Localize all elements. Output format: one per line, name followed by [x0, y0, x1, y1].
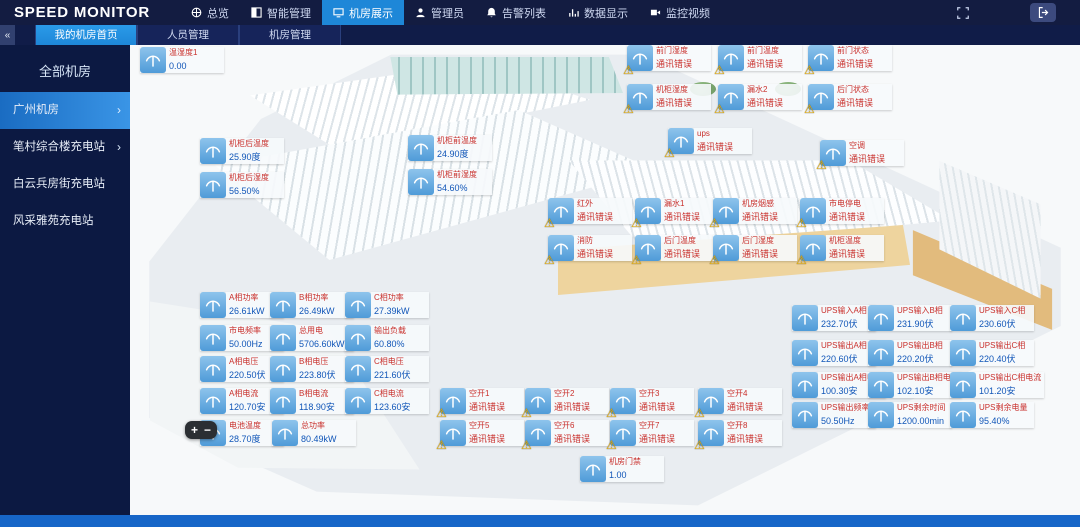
sensor-text: UPS输出B相 220.20伏 — [894, 340, 952, 366]
overview-icon — [191, 7, 202, 18]
sensor-text: 空开5 通讯错误 — [466, 420, 524, 446]
tab-bar: « 我的机房首页 人员管理 机房管理 — [0, 25, 1080, 45]
sensor-icon: ⚠ — [408, 169, 434, 195]
sensor-value: 221.60伏 — [374, 368, 426, 380]
warning-icon: ⚠ — [436, 439, 447, 451]
sensor-icon: ⚠ — [610, 388, 636, 414]
sensor-title: UPS输出C相电流 — [979, 373, 1041, 382]
sensor-text: UPS输入C相 230.60伏 — [976, 305, 1034, 331]
sensor-value: 5706.60kWh — [299, 337, 351, 349]
sidebar-room-label: 风采雅苑充电站 — [13, 215, 94, 227]
sensor-value: 27.39kW — [374, 304, 426, 316]
sensor-icon: ⚠ — [270, 292, 296, 318]
sensor-label[interactable]: ⚠ 红外 通讯错误 — [548, 198, 632, 224]
logout-icon[interactable] — [1030, 3, 1056, 22]
sensor-icon: ⚠ — [713, 198, 739, 224]
sensor-value: 通讯错误 — [554, 400, 606, 412]
sensor-text: 空开4 通讯错误 — [724, 388, 782, 414]
sensor-label[interactable]: ⚠ 前门湿度 通讯错误 — [627, 45, 711, 71]
sensor-title: UPS输出频率 — [821, 403, 873, 412]
sidebar-room-label: 广州机房 — [13, 104, 59, 116]
sensor-title: 机柜温度 — [829, 236, 881, 245]
sensor-icon: ⚠ — [345, 292, 371, 318]
tab[interactable]: 机房管理 — [239, 25, 341, 45]
sensor-label[interactable]: ⚠ 空开2 通讯错误 — [525, 388, 609, 414]
nav-item-label: 智能管理 — [267, 5, 311, 21]
sensor-value: 通讯错误 — [837, 96, 889, 108]
sensor-value: 通讯错误 — [727, 400, 779, 412]
sensor-icon: ⚠ — [635, 198, 661, 224]
sensor-title: 空开3 — [639, 389, 691, 398]
sensor-label[interactable]: ⚠ UPS输出C相电流 101.20安 — [950, 372, 1044, 398]
sensor-icon: ⚠ — [792, 305, 818, 331]
smart-icon — [251, 7, 262, 18]
nav-item[interactable]: 告警列表 — [475, 0, 557, 25]
tabs: 我的机房首页 人员管理 机房管理 — [35, 25, 341, 45]
warning-icon: ⚠ — [694, 439, 705, 451]
sensor-label[interactable]: ⚠ 后门温度 通讯错误 — [635, 235, 719, 261]
sensor-value: 220.20伏 — [897, 352, 949, 364]
sensor-title: UPS输入B相 — [897, 306, 949, 315]
fullscreen-icon[interactable] — [956, 6, 970, 20]
sensor-icon: ⚠ — [808, 45, 834, 71]
sidebar-room-label: 笔村综合楼充电站 — [13, 141, 105, 153]
sensor-label[interactable]: ⚠ 温湿度1 0.00 — [140, 47, 224, 73]
sensor-icon: ⚠ — [868, 372, 894, 398]
sensor-text: 空开8 通讯错误 — [724, 420, 782, 446]
sensor-title: ups — [697, 129, 749, 138]
sensor-value: 通讯错误 — [742, 210, 794, 222]
top-navigation-bar: SPEED MONITOR 总览 智能管理 机房展示 管理员 告警列表 数据显示 — [0, 0, 1080, 25]
warning-icon: ⚠ — [694, 407, 705, 419]
sensor-title: 机柜后湿度 — [229, 173, 281, 182]
sensor-icon: ⚠ — [270, 388, 296, 414]
sensor-text: 市电停电 通讯错误 — [826, 198, 884, 224]
sensor-icon: ⚠ — [200, 388, 226, 414]
zoom-out-button[interactable]: − — [204, 424, 211, 436]
sensor-value: 通讯错误 — [742, 247, 794, 259]
sensor-icon: ⚠ — [200, 138, 226, 164]
sensor-label[interactable]: ⚠ UPS输出B相 220.20伏 — [868, 340, 952, 366]
sensor-label[interactable]: ⚠ 空开7 通讯错误 — [610, 420, 694, 446]
sensor-title: 前门湿度 — [656, 46, 708, 55]
sensor-icon: ⚠ — [950, 340, 976, 366]
sensor-label[interactable]: ⚠ 机柜湿度 通讯错误 — [627, 84, 711, 110]
sensor-icon: ⚠ — [800, 235, 826, 261]
sensor-label[interactable]: ⚠ 机柜前温度 24.90度 — [408, 135, 492, 161]
tab-label: 我的机房首页 — [55, 29, 118, 41]
sensor-label[interactable]: ⚠ 机柜温度 通讯错误 — [800, 235, 884, 261]
machine-room-3d-map[interactable]: ⚠ 温湿度1 0.00 ⚠ 机柜后温度 25.90度 — [0, 0, 1080, 527]
sensor-title: 温湿度1 — [169, 48, 221, 57]
nav-item[interactable]: 管理员 — [404, 0, 475, 25]
sidebar-room-item[interactable]: 风采雅苑充电站 › — [0, 203, 130, 240]
alarms-icon — [486, 7, 497, 18]
sensor-value: 通讯错误 — [656, 57, 708, 69]
sensor-value: 232.70伏 — [821, 317, 873, 329]
sensor-label[interactable]: ⚠ 前门温度 通讯错误 — [718, 45, 802, 71]
sensor-icon: ⚠ — [548, 198, 574, 224]
sensor-title: 漏水1 — [664, 199, 716, 208]
nav-item-label: 管理员 — [431, 5, 464, 21]
sensor-label[interactable]: ⚠ 空开3 通讯错误 — [610, 388, 694, 414]
sensor-title: 后门温度 — [664, 236, 716, 245]
sensor-label[interactable]: ⚠ B相功率 26.49kW — [270, 292, 354, 318]
sensor-icon: ⚠ — [627, 45, 653, 71]
sensor-title: 前门状态 — [837, 46, 889, 55]
sensor-icon: ⚠ — [950, 372, 976, 398]
sensor-text: 机柜前湿度 54.60% — [434, 169, 492, 195]
sensor-text: 机房烟感 通讯错误 — [739, 198, 797, 224]
warning-icon: ⚠ — [631, 254, 642, 266]
sensor-icon: ⚠ — [610, 420, 636, 446]
data-icon — [568, 7, 579, 18]
sensor-value: 54.60% — [437, 181, 489, 193]
sensor-label[interactable]: ⚠ UPS输出C相 220.40伏 — [950, 340, 1034, 366]
sensor-value: 231.90伏 — [897, 317, 949, 329]
sensor-value: 1.00 — [609, 468, 661, 480]
sensor-text: UPS输出C相电流 101.20安 — [976, 372, 1044, 398]
sensor-title: UPS剩余电量 — [979, 403, 1031, 412]
warning-icon: ⚠ — [796, 217, 807, 229]
sensor-icon: ⚠ — [718, 84, 744, 110]
sensor-text: C相功率 27.39kW — [371, 292, 429, 318]
sensor-title: 空开1 — [469, 389, 521, 398]
sensor-value: 223.80伏 — [299, 368, 351, 380]
sensor-text: 后门湿度 通讯错误 — [739, 235, 797, 261]
sensor-value: 1200.00min — [897, 414, 949, 426]
sensor-label[interactable]: ⚠ UPS输入C相 230.60伏 — [950, 305, 1034, 331]
warning-icon: ⚠ — [631, 217, 642, 229]
sensor-label[interactable]: ⚠ 总用电 5706.60kWh — [270, 325, 354, 351]
sensor-icon: ⚠ — [627, 84, 653, 110]
sensor-label[interactable]: ⚠ 后门状态 通讯错误 — [808, 84, 892, 110]
sensor-title: 空开4 — [727, 389, 779, 398]
sensor-title: 空开8 — [727, 421, 779, 430]
sensor-text: UPS剩余时间 1200.00min — [894, 402, 952, 428]
sensor-title: 机房门禁 — [609, 457, 661, 466]
sensor-value: 通讯错误 — [849, 152, 901, 164]
nav-item[interactable]: 监控视频 — [639, 0, 721, 25]
sensor-label[interactable]: ⚠ 机房门禁 1.00 — [580, 456, 664, 482]
sensor-icon: ⚠ — [548, 235, 574, 261]
sensor-label[interactable]: ⚠ B相电流 118.90安 — [270, 388, 354, 414]
sensor-text: 后门状态 通讯错误 — [834, 84, 892, 110]
sensor-label[interactable]: ⚠ 空开5 通讯错误 — [440, 420, 524, 446]
sensor-title: 机柜湿度 — [656, 85, 708, 94]
sensor-value: 通讯错误 — [469, 400, 521, 412]
chevron-right-icon: › — [117, 129, 121, 166]
warning-icon: ⚠ — [816, 159, 827, 171]
sensor-title: UPS输出C相 — [979, 341, 1031, 350]
warning-icon: ⚠ — [714, 64, 725, 76]
sensor-icon: ⚠ — [345, 388, 371, 414]
sensor-value: 50.50Hz — [821, 414, 873, 426]
nav-item[interactable]: 机房展示 — [322, 0, 404, 25]
sensor-title: 机柜后温度 — [229, 139, 281, 148]
sensor-title: 输出负载 — [374, 326, 426, 335]
sensor-label[interactable]: ⚠ 空开8 通讯错误 — [698, 420, 782, 446]
warning-icon: ⚠ — [544, 217, 555, 229]
sidebar-collapse-button[interactable]: « — [0, 25, 15, 45]
sensor-label[interactable]: ⚠ 后门湿度 通讯错误 — [713, 235, 797, 261]
sensor-title: B相功率 — [299, 293, 351, 302]
sensor-label[interactable]: ⚠ 机柜前湿度 54.60% — [408, 169, 492, 195]
sensor-label[interactable]: ⚠ 机柜后温度 25.90度 — [200, 138, 284, 164]
warning-icon: ⚠ — [436, 407, 447, 419]
warning-icon: ⚠ — [664, 147, 675, 159]
sensor-label[interactable]: ⚠ C相电压 221.60伏 — [345, 356, 429, 382]
sensor-icon: ⚠ — [792, 402, 818, 428]
sensor-icon: ⚠ — [440, 420, 466, 446]
sensor-value: 24.90度 — [437, 147, 489, 159]
sensor-label[interactable]: ⚠ ups 通讯错误 — [668, 128, 752, 154]
chevron-right-icon: › — [117, 92, 121, 129]
sensor-title: 后门状态 — [837, 85, 889, 94]
sensor-label[interactable]: ⚠ B相电压 223.80伏 — [270, 356, 354, 382]
sensor-value: 通讯错误 — [727, 432, 779, 444]
sensor-title: 总功率 — [301, 421, 353, 430]
sensor-value: 通讯错误 — [829, 210, 881, 222]
sensor-value: 220.40伏 — [979, 352, 1031, 364]
app-logo: SPEED MONITOR — [14, 4, 150, 21]
sensor-label[interactable]: ⚠ UPS剩余电量 95.40% — [950, 402, 1034, 428]
sensor-value: 通讯错误 — [639, 432, 691, 444]
sensor-value: 通讯错误 — [554, 432, 606, 444]
sensor-value: 通讯错误 — [747, 57, 799, 69]
building-glass-section — [388, 55, 623, 95]
sensor-text: 机柜后湿度 56.50% — [226, 172, 284, 198]
sensor-text: 输出负载 60.80% — [371, 325, 429, 351]
warning-icon: ⚠ — [623, 103, 634, 115]
sensor-value: 25.90度 — [229, 150, 281, 162]
rooms-icon — [333, 7, 344, 18]
warning-icon: ⚠ — [714, 103, 725, 115]
sensor-title: UPS剩余时间 — [897, 403, 949, 412]
sensor-icon: ⚠ — [792, 340, 818, 366]
sensor-label[interactable]: ⚠ 市电停电 通讯错误 — [800, 198, 884, 224]
sensor-title: 空开7 — [639, 421, 691, 430]
sidebar-room-label: 白云兵房街充电站 — [13, 178, 105, 190]
sensor-value: 95.40% — [979, 414, 1031, 426]
sensor-label[interactable]: ⚠ UPS输入B相 231.90伏 — [868, 305, 952, 331]
sensor-text: 空开7 通讯错误 — [636, 420, 694, 446]
sensor-text: 空开1 通讯错误 — [466, 388, 524, 414]
sensor-value: 26.49kW — [299, 304, 351, 316]
sensor-title: C相电流 — [374, 389, 426, 398]
sensor-text: 机柜湿度 通讯错误 — [653, 84, 711, 110]
sensor-text: 总功率 80.49kW — [298, 420, 356, 446]
warning-icon: ⚠ — [623, 64, 634, 76]
sidebar-title: 全部机房 — [0, 61, 130, 80]
nav-item[interactable]: 智能管理 — [240, 0, 322, 25]
sensor-icon: ⚠ — [408, 135, 434, 161]
warning-icon: ⚠ — [709, 217, 720, 229]
sensor-label[interactable]: ⚠ 机柜后湿度 56.50% — [200, 172, 284, 198]
sensor-text: 空开2 通讯错误 — [551, 388, 609, 414]
sensor-title: 空调 — [849, 141, 901, 150]
sensor-title: 红外 — [577, 199, 629, 208]
sensor-icon: ⚠ — [140, 47, 166, 73]
sensor-title: UPS输出B相 — [897, 341, 949, 350]
sensor-text: 前门湿度 通讯错误 — [653, 45, 711, 71]
sensor-icon: ⚠ — [868, 340, 894, 366]
sensor-icon: ⚠ — [950, 305, 976, 331]
sensor-icon: ⚠ — [440, 388, 466, 414]
main-nav: 总览 智能管理 机房展示 管理员 告警列表 数据显示 监控视频 — [180, 0, 721, 25]
sensor-label[interactable]: ⚠ UPS剩余时间 1200.00min — [868, 402, 952, 428]
warning-icon: ⚠ — [796, 254, 807, 266]
tab-label: 人员管理 — [167, 29, 209, 41]
sensor-title: UPS输入C相 — [979, 306, 1031, 315]
sidebar-room-item[interactable]: 广州机房 › — [0, 92, 130, 129]
tab[interactable]: 我的机房首页 — [35, 25, 137, 45]
sensor-icon: ⚠ — [345, 325, 371, 351]
sensor-icon: ⚠ — [200, 325, 226, 351]
sensor-text: C相电压 221.60伏 — [371, 356, 429, 382]
sensor-value: 118.90安 — [299, 400, 351, 412]
sensor-label[interactable]: ⚠ 漏水2 通讯错误 — [718, 84, 802, 110]
sidebar-room-item[interactable]: 白云兵房街充电站 › — [0, 166, 130, 203]
sensor-text: 红外 通讯错误 — [574, 198, 632, 224]
tab[interactable]: 人员管理 — [137, 25, 239, 45]
sensor-label[interactable]: ⚠ C相电流 123.60安 — [345, 388, 429, 414]
sensor-icon: ⚠ — [272, 420, 298, 446]
sensor-icon: ⚠ — [635, 235, 661, 261]
sensor-label[interactable]: ⚠ UPS输出B相电流 102.10安 — [868, 372, 962, 398]
zoom-in-button[interactable]: + — [191, 424, 198, 436]
sensor-icon: ⚠ — [200, 172, 226, 198]
nav-item-label: 告警列表 — [502, 5, 546, 21]
sensor-label[interactable]: ⚠ UPS输出A相 220.60伏 — [792, 340, 876, 366]
sensor-value: 通讯错误 — [837, 57, 889, 69]
sensor-text: UPS输出C相 220.40伏 — [976, 340, 1034, 366]
sensor-text: 机柜前温度 24.90度 — [434, 135, 492, 161]
sensor-icon: ⚠ — [525, 388, 551, 414]
sensor-label[interactable]: ⚠ 消防 通讯错误 — [548, 235, 632, 261]
sensor-text: 空开6 通讯错误 — [551, 420, 609, 446]
sensor-label[interactable]: ⚠ C相功率 27.39kW — [345, 292, 429, 318]
sensor-value: 230.60伏 — [979, 317, 1031, 329]
sensor-icon: ⚠ — [713, 235, 739, 261]
sensor-label[interactable]: ⚠ 空开6 通讯错误 — [525, 420, 609, 446]
sensor-value: 123.60安 — [374, 400, 426, 412]
sensor-title: C相电压 — [374, 357, 426, 366]
sensor-title: 漏水2 — [747, 85, 799, 94]
sensor-value: 56.50% — [229, 184, 281, 196]
sensor-title: 消防 — [577, 236, 629, 245]
sensor-label[interactable]: ⚠ 漏水1 通讯错误 — [635, 198, 719, 224]
sensor-value: 220.60伏 — [821, 352, 873, 364]
sensor-title: B相电压 — [299, 357, 351, 366]
sensor-value: 通讯错误 — [747, 96, 799, 108]
sensor-text: 机柜后温度 25.90度 — [226, 138, 284, 164]
sensor-icon: ⚠ — [792, 372, 818, 398]
room-sidebar: 全部机房 广州机房 › 笔村综合楼充电站 › 白云兵房街充电站 › 风采雅苑充电… — [0, 45, 130, 515]
sensor-icon: ⚠ — [345, 356, 371, 382]
sensor-value: 通讯错误 — [577, 210, 629, 222]
sensor-icon: ⚠ — [808, 84, 834, 110]
nav-item-label: 监控视频 — [666, 5, 710, 21]
sensor-text: 机房门禁 1.00 — [606, 456, 664, 482]
video-icon — [650, 7, 661, 18]
sensor-label[interactable]: ⚠ 空开1 通讯错误 — [440, 388, 524, 414]
sensor-title: UPS输出A相 — [821, 341, 873, 350]
sensor-text: 温湿度1 0.00 — [166, 47, 224, 73]
sensor-icon: ⚠ — [200, 356, 226, 382]
sensor-icon: ⚠ — [668, 128, 694, 154]
sensor-value: 60.80% — [374, 337, 426, 349]
sensor-value: 通讯错误 — [829, 247, 881, 259]
nav-item-label: 机房展示 — [349, 5, 393, 21]
sensor-icon: ⚠ — [698, 388, 724, 414]
sensor-icon: ⚠ — [580, 456, 606, 482]
sensor-title: B相电流 — [299, 389, 351, 398]
sensor-icon: ⚠ — [950, 402, 976, 428]
sensor-icon: ⚠ — [270, 325, 296, 351]
sensor-title: 前门温度 — [747, 46, 799, 55]
sensor-icon: ⚠ — [868, 305, 894, 331]
sensor-label[interactable]: ⚠ UPS输入A相 232.70伏 — [792, 305, 876, 331]
nav-item[interactable]: 总览 — [180, 0, 240, 25]
sensor-text: 漏水2 通讯错误 — [744, 84, 802, 110]
sensor-icon: ⚠ — [200, 292, 226, 318]
nav-item-label: 数据显示 — [584, 5, 628, 21]
warning-icon: ⚠ — [804, 64, 815, 76]
sensor-icon: ⚠ — [718, 45, 744, 71]
sensor-label[interactable]: ⚠ 空开4 通讯错误 — [698, 388, 782, 414]
sensor-text: ups 通讯错误 — [694, 128, 752, 154]
sensor-icon: ⚠ — [800, 198, 826, 224]
sensor-label[interactable]: ⚠ 机房烟感 通讯错误 — [713, 198, 797, 224]
sensor-title: 市电停电 — [829, 199, 881, 208]
sensor-title: 机柜前湿度 — [437, 170, 489, 179]
sensor-text: UPS输入B相 231.90伏 — [894, 305, 952, 331]
warning-icon: ⚠ — [521, 439, 532, 451]
nav-item[interactable]: 数据显示 — [557, 0, 639, 25]
sensor-label[interactable]: ⚠ 总功率 80.49kW — [272, 420, 356, 446]
sensor-title: 总用电 — [299, 326, 351, 335]
sensor-icon: ⚠ — [868, 402, 894, 428]
warning-icon: ⚠ — [544, 254, 555, 266]
footer-strip — [0, 515, 1080, 527]
sensor-icon: ⚠ — [270, 356, 296, 382]
sensor-label[interactable]: ⚠ 输出负载 60.80% — [345, 325, 429, 351]
sensor-value: 通讯错误 — [469, 432, 521, 444]
sensor-title: UPS输入A相 — [821, 306, 873, 315]
sensor-label[interactable]: ⚠ 前门状态 通讯错误 — [808, 45, 892, 71]
admin-icon — [415, 7, 426, 18]
sensor-title: 机柜前温度 — [437, 136, 489, 145]
sensor-value: 通讯错误 — [639, 400, 691, 412]
sensor-value: 通讯错误 — [697, 140, 749, 152]
sensor-value: 通讯错误 — [656, 96, 708, 108]
warning-icon: ⚠ — [606, 439, 617, 451]
map-zoom-control[interactable]: + − — [185, 421, 217, 439]
sensor-title: 空开5 — [469, 421, 521, 430]
warning-icon: ⚠ — [521, 407, 532, 419]
sensor-icon: ⚠ — [698, 420, 724, 446]
sensor-text: 前门状态 通讯错误 — [834, 45, 892, 71]
sensor-text: 前门温度 通讯错误 — [744, 45, 802, 71]
sensor-title: 后门湿度 — [742, 236, 794, 245]
sensor-text: 空调 通讯错误 — [846, 140, 904, 166]
sensor-title: C相功率 — [374, 293, 426, 302]
warning-icon: ⚠ — [804, 103, 815, 115]
sensor-label[interactable]: ⚠ UPS输出频率 50.50Hz — [792, 402, 876, 428]
sensor-label[interactable]: ⚠ 空调 通讯错误 — [820, 140, 904, 166]
sidebar-room-item[interactable]: 笔村综合楼充电站 › — [0, 129, 130, 166]
